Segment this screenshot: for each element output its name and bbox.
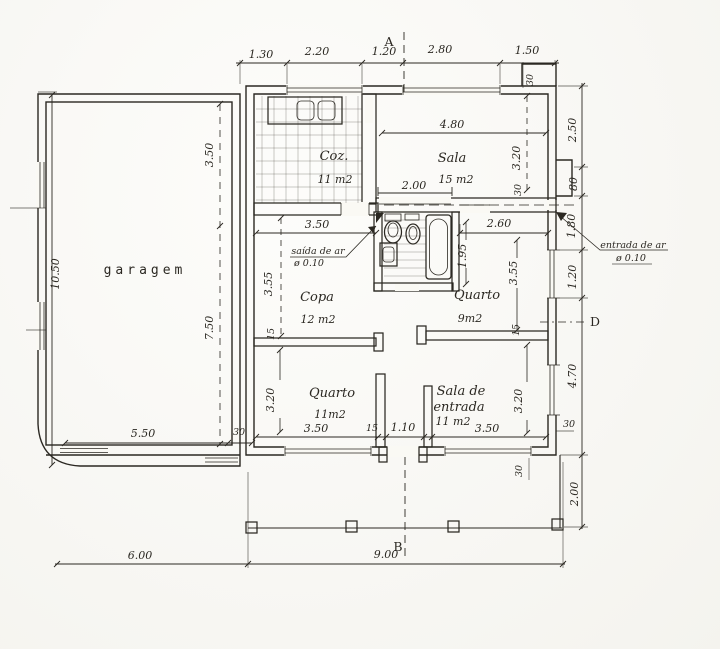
room-label-cozinha: Coz.: [320, 149, 349, 164]
shaft: [365, 97, 373, 123]
dim-right-porch: 2.00: [568, 482, 581, 508]
dim-quarto11-height: 3.20: [264, 388, 277, 413]
dim-garage-lower: 7.50: [203, 316, 216, 341]
toilet: [385, 221, 402, 243]
duct-corner-mark: [376, 213, 384, 223]
dim-top-4: 2.80: [427, 43, 453, 56]
dim-right-4: 1.20: [566, 265, 579, 290]
note-saida-ar-1: saída de ar: [291, 246, 346, 257]
room-area-quarto9: 9m2: [458, 312, 482, 325]
dim-top-wall: 30: [525, 74, 536, 86]
room-area-sala: 15 m2: [439, 173, 474, 186]
bathroom-fixtures: [376, 213, 451, 279]
front-door-opening: [387, 446, 419, 457]
porch-column: [346, 521, 357, 532]
dim-quarto9-wall: 15: [511, 324, 522, 336]
bath-left-wall: [374, 212, 382, 291]
dim-top-5: 1.50: [515, 44, 540, 57]
dim-sala-entrada-height: 3.20: [512, 389, 525, 414]
dim-sala-width: 4.80: [439, 118, 465, 131]
dim-sala-opening: 2.00: [401, 179, 427, 192]
dim-sala-entrada-width: 3.50: [475, 422, 500, 435]
sink-basin-right: [318, 101, 335, 120]
dim-right-5: 4.70: [566, 364, 579, 390]
section-marker-b: B: [393, 539, 402, 554]
section-marker-a: A: [383, 34, 394, 49]
dim-sala-height: 3.20: [510, 146, 523, 171]
bath-door: [395, 284, 419, 291]
dim-copa-wall: 15: [266, 328, 277, 340]
room-area-cozinha: 11 m2: [318, 173, 353, 186]
note-leaders: [290, 212, 668, 264]
section-marker-d: D: [590, 314, 600, 329]
room-label-quarto11: Quarto: [309, 386, 355, 401]
dim-top-1: 1.30: [249, 48, 274, 61]
bath-tiles: [384, 220, 426, 276]
dim-quarto11-wall: 15: [366, 423, 378, 434]
dim-bottom-garage: 6.00: [128, 549, 153, 562]
saida-ar-arrow: [368, 226, 376, 233]
dim-quarto9-width: 2.60: [486, 217, 512, 230]
dim-quarto9-height: 3.55: [507, 261, 520, 286]
porch-column: [448, 521, 459, 532]
mid-wall-right: [426, 331, 548, 340]
dim-right-wall: 30: [563, 419, 575, 430]
dim-right-2: 80: [567, 177, 580, 191]
dim-garage-wall: 30: [233, 427, 245, 438]
room-label-quarto9: Quarto: [454, 288, 500, 303]
dim-right-1: 2.50: [566, 118, 579, 144]
note-saida-ar-2: ø 0.10: [293, 258, 324, 269]
quarto11-right-wall: [376, 374, 385, 447]
dim-sala-wall: 30: [513, 184, 524, 196]
room-label-sala-entrada-1: Sala de: [437, 384, 486, 399]
note-entrada-ar-1: entrada de ar: [600, 240, 667, 251]
room-area-sala-entrada: 11 m2: [436, 415, 471, 428]
room-label-copa: Copa: [300, 290, 334, 305]
room-label-sala: Sala: [438, 151, 467, 166]
room-label-garagem: garagem: [104, 263, 187, 278]
dim-right-3: 1.80: [565, 214, 578, 239]
bidet: [406, 224, 420, 244]
dim-garage-width: 5.50: [131, 427, 156, 440]
note-entrada-ar-2: ø 0.10: [615, 253, 646, 264]
dim-bath-depth: 1.95: [456, 244, 469, 269]
room-area-quarto11: 11m2: [314, 408, 345, 421]
room-label-sala-entrada-2: entrada: [433, 400, 484, 415]
dim-copa-height: 3.55: [262, 272, 275, 297]
dim-copa-width: 3.50: [305, 218, 330, 231]
dim-quarto11-width: 3.50: [304, 422, 329, 435]
room-area-copa: 12 m2: [301, 313, 336, 326]
floor-plan-sheet: 1.30 2.20 1.20 2.80 1.50 30 A 2.50 80 1.…: [0, 0, 720, 649]
sink-basin-left: [297, 101, 314, 120]
dim-garage-upper: 3.50: [203, 143, 216, 168]
floor-plan-drawing: 1.30 2.20 1.20 2.80 1.50 30 A 2.50 80 1.…: [0, 0, 720, 649]
dim-garage-height: 10.50: [49, 258, 62, 290]
dim-quarto11-door: 1.10: [391, 421, 416, 434]
dim-porch-wall: 30: [514, 465, 525, 477]
dim-top-2: 2.20: [304, 45, 330, 58]
